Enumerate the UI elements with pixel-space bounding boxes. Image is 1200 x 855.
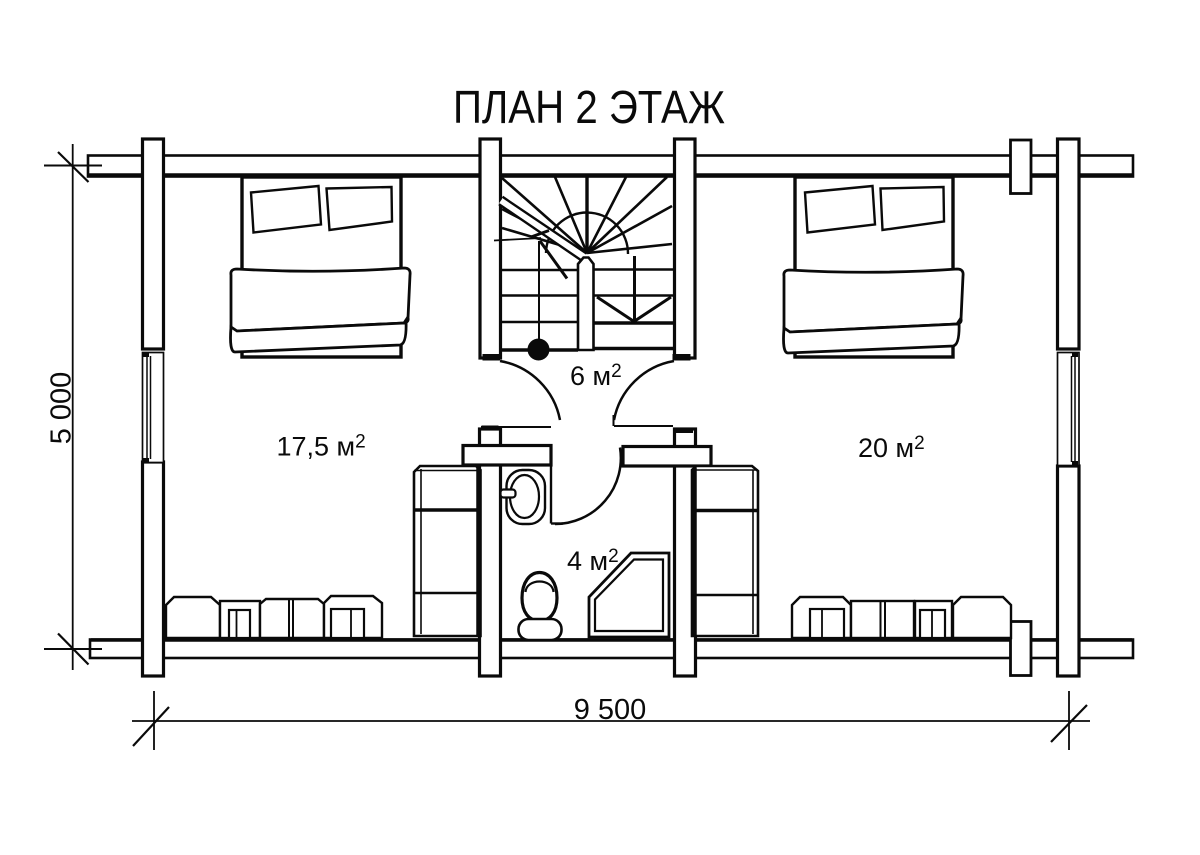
svg-text:5 000: 5 000: [46, 372, 78, 445]
svg-text:17,5 м2: 17,5 м2: [277, 432, 366, 462]
svg-text:ПЛАН 2 ЭТАЖ: ПЛАН 2 ЭТАЖ: [453, 81, 725, 133]
svg-text:9 500: 9 500: [574, 694, 647, 726]
